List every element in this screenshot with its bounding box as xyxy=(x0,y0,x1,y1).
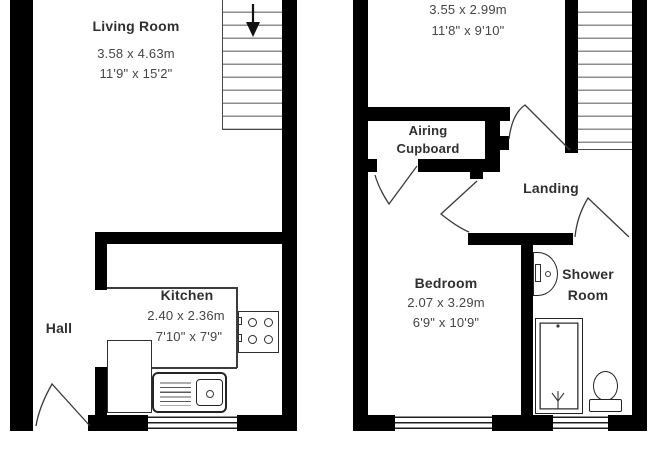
room-label-landing: Landing xyxy=(523,181,579,196)
room-label-kitchen: Kitchen xyxy=(161,288,214,303)
wall-cupboard-jamb xyxy=(368,159,377,172)
staircase-ground-floor xyxy=(222,0,282,130)
airing-cupboard-door-swing xyxy=(375,166,417,204)
basin-icon xyxy=(533,252,558,296)
basin-tap xyxy=(535,264,541,282)
wall-cupboard-bottom xyxy=(418,159,500,172)
room-label-shower-room-2: Room xyxy=(568,288,608,303)
room-label-bedroom-rear: Bedroom xyxy=(415,276,478,291)
room-size-living-room-imperial: 11'9" x 15'2" xyxy=(100,67,173,81)
room-size-bedroom-rear-imperial: 6'9" x 10'9" xyxy=(413,316,479,330)
toilet-cistern xyxy=(589,399,622,412)
wall-gf-right-exterior xyxy=(282,0,297,431)
wall-gf-bottom-mid xyxy=(88,415,148,431)
wall-ff-stair-side xyxy=(565,0,578,153)
room-size-kitchen-imperial: 7'10" x 7'9" xyxy=(156,330,222,344)
room-label-airing-cupboard-1: Airing xyxy=(409,124,448,138)
room-label-hall: Hall xyxy=(46,321,72,336)
wall-ff-bottom-mid xyxy=(492,415,553,431)
wall-ff-left-exterior xyxy=(353,0,368,431)
wall-cupboard-tab xyxy=(500,136,509,150)
room-size-bedroom-rear-metric: 2.07 x 3.29m xyxy=(407,296,485,310)
wall-ff-right-exterior xyxy=(632,0,647,431)
sink-drainer xyxy=(160,379,191,406)
hob-icon xyxy=(238,311,279,353)
bedroom-window xyxy=(395,415,492,431)
front-door-swing xyxy=(36,384,90,426)
shower-room-window xyxy=(553,415,608,431)
room-label-airing-cupboard-2: Cupboard xyxy=(397,142,460,156)
shower-room-door-swing xyxy=(575,198,629,237)
room-size-kitchen-metric: 2.40 x 2.36m xyxy=(147,309,225,323)
staircase-first-floor xyxy=(578,0,632,150)
wall-ff-bottom-right xyxy=(608,415,647,431)
kitchen-window xyxy=(148,415,237,431)
room-size-living-room-metric: 3.58 x 4.63m xyxy=(97,47,175,61)
toilet-icon xyxy=(593,371,618,401)
wall-gf-bottom-right xyxy=(237,415,297,431)
kitchen-counter-edge-front xyxy=(152,367,237,369)
kitchen-unit xyxy=(107,340,152,413)
room-size-bedroom-front-imperial: 11'8" x 9'10" xyxy=(432,24,505,38)
room-size-bedroom-front-metric: 3.55 x 2.99m xyxy=(429,3,507,17)
sink-icon xyxy=(152,372,227,413)
wall-gf-hall-kitchen-upper xyxy=(95,232,107,290)
wall-ff-bedroom-shower xyxy=(521,245,533,415)
bedroom-front-door-swing xyxy=(509,105,570,150)
wall-gf-left-exterior xyxy=(10,0,33,431)
wall-gf-living-kitchen xyxy=(95,232,297,244)
wall-ff-bottom-left xyxy=(353,415,395,431)
bedroom-rear-door-swing xyxy=(441,181,477,232)
room-label-shower-room-1: Shower xyxy=(562,267,614,282)
wall-bedroom-door-tab xyxy=(470,172,483,179)
wall-ff-shower-top xyxy=(468,233,573,245)
floorplan-canvas: Living Room 3.58 x 4.63m 11'9" x 15'2" H… xyxy=(0,0,650,450)
room-label-living-room: Living Room xyxy=(93,19,180,34)
shower-tray xyxy=(535,318,583,414)
